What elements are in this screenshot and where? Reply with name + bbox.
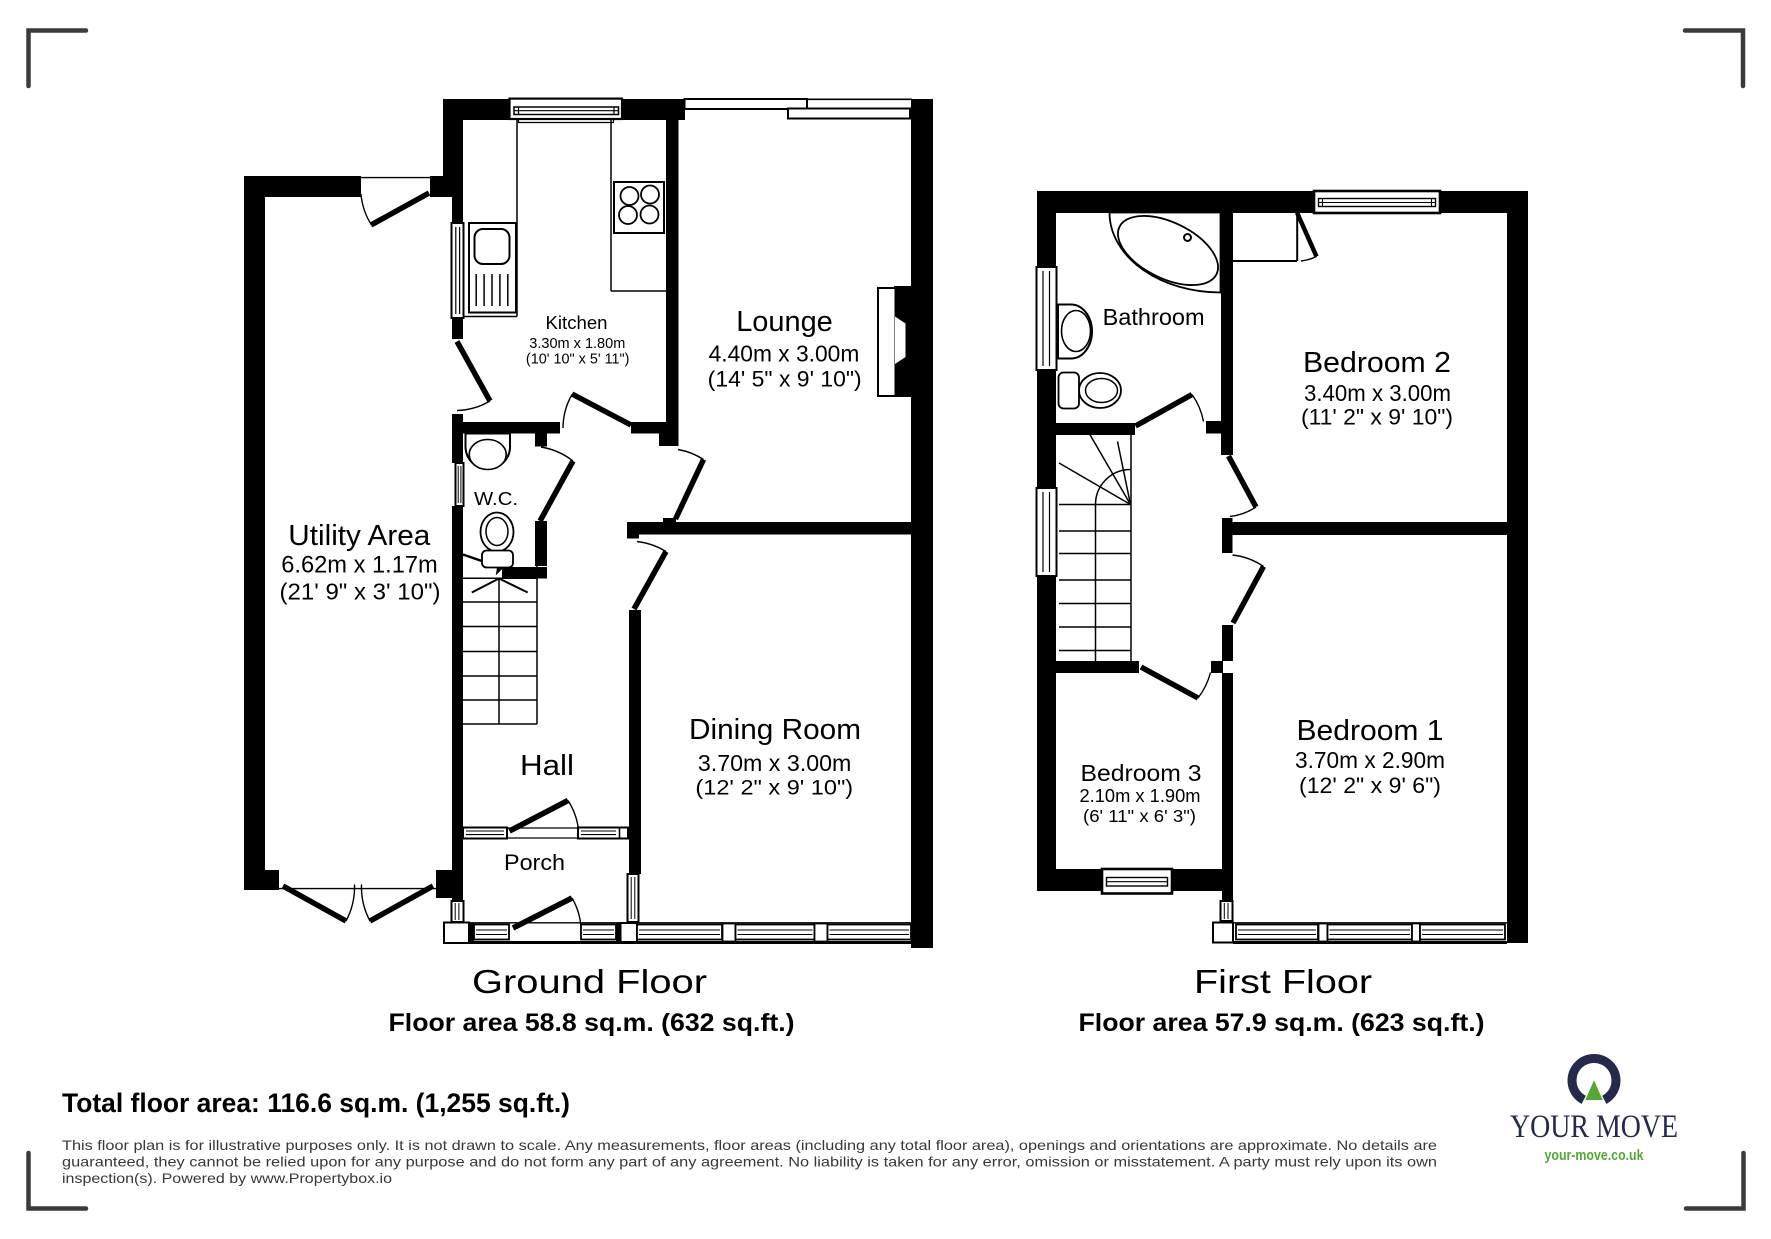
svg-text:Bathroom: Bathroom: [1103, 304, 1205, 330]
svg-text:3.40m x 3.00m: 3.40m x 3.00m: [1304, 380, 1451, 406]
svg-text:Bedroom 2: Bedroom 2: [1303, 347, 1451, 379]
svg-text:Kitchen: Kitchen: [546, 313, 608, 333]
svg-text:Porch: Porch: [504, 850, 565, 875]
svg-text:(12' 2" x 9' 10"): (12' 2" x 9' 10"): [695, 775, 853, 800]
svg-text:Dining Room: Dining Room: [689, 714, 861, 746]
svg-text:Ground Floor: Ground Floor: [472, 964, 707, 1001]
svg-text:This floor plan is for illustr: This floor plan is for illustrative purp…: [62, 1137, 1437, 1153]
svg-text:guaranteed, they cannot be rel: guaranteed, they cannot be relied upon f…: [62, 1154, 1437, 1170]
svg-text:2.10m x 1.90m: 2.10m x 1.90m: [1080, 786, 1201, 806]
svg-text:Floor area 58.8 sq.m. (632 sq.: Floor area 58.8 sq.m. (632 sq.ft.): [389, 1009, 795, 1037]
svg-text:inspection(s). Powered by www.: inspection(s). Powered by www.Propertybo…: [62, 1170, 392, 1186]
svg-text:W.C.: W.C.: [474, 489, 518, 509]
svg-text:3.70m x 2.90m: 3.70m x 2.90m: [1295, 747, 1445, 773]
svg-text:Total floor area: 116.6 sq.m.: Total floor area: 116.6 sq.m. (1,255 sq.…: [62, 1088, 570, 1118]
svg-text:Floor area 57.9 sq.m. (623 sq.: Floor area 57.9 sq.m. (623 sq.ft.): [1079, 1009, 1485, 1037]
svg-text:4.40m x 3.00m: 4.40m x 3.00m: [709, 341, 860, 367]
svg-text:(10' 10" x 5' 11"): (10' 10" x 5' 11"): [526, 352, 630, 368]
svg-text:Utility Area: Utility Area: [288, 520, 431, 552]
svg-text:3.30m x 1.80m: 3.30m x 1.80m: [529, 336, 625, 352]
svg-text:Hall: Hall: [520, 750, 574, 782]
svg-text:your-move.co.uk: your-move.co.uk: [1545, 1147, 1645, 1164]
svg-text:Bedroom 3: Bedroom 3: [1081, 760, 1202, 786]
svg-text:3.70m x 3.00m: 3.70m x 3.00m: [698, 750, 852, 776]
svg-text:(12' 2" x 9' 6"): (12' 2" x 9' 6"): [1299, 773, 1441, 798]
svg-text:(6' 11" x 6' 3"): (6' 11" x 6' 3"): [1083, 806, 1196, 826]
svg-text:Bedroom 1: Bedroom 1: [1297, 715, 1444, 747]
svg-text:(14' 5" x 9' 10"): (14' 5" x 9' 10"): [708, 367, 862, 392]
svg-text:(11' 2" x 9' 10"): (11' 2" x 9' 10"): [1301, 405, 1453, 430]
svg-text:6.62m x 1.17m: 6.62m x 1.17m: [281, 553, 438, 579]
svg-text:First Floor: First Floor: [1194, 964, 1372, 1001]
svg-text:Lounge: Lounge: [736, 306, 833, 338]
svg-text:YOUR MOVE: YOUR MOVE: [1510, 1109, 1678, 1145]
svg-text:(21' 9" x 3' 10"): (21' 9" x 3' 10"): [280, 579, 441, 605]
